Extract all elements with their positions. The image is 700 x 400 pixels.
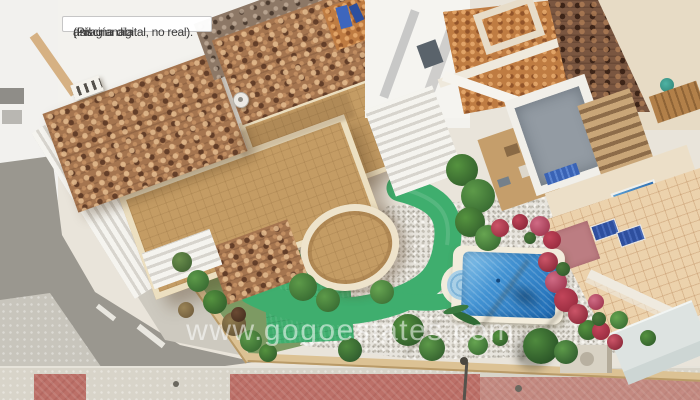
bougainvillea [538, 252, 558, 272]
hedge [455, 207, 485, 237]
building-shadow [234, 92, 356, 157]
roof-shadow [380, 9, 420, 99]
bougainvillea [543, 231, 561, 249]
pool-coping [451, 245, 566, 325]
pool-coping-steps [441, 264, 483, 306]
awning-panels [608, 300, 700, 385]
bougainvillea [554, 288, 578, 312]
photo-note: ¡Imagíanala así! (Piscina digital, no re… [62, 16, 212, 32]
photo-note-line: (Piscina digital, no real). [73, 24, 193, 41]
neighbor-terrace-cream [545, 145, 700, 236]
bougainvillea [491, 219, 509, 237]
courtyard-white-surround [504, 74, 617, 196]
bougainvillea [607, 334, 623, 350]
sun-lounger [590, 218, 620, 242]
bougainvillea-leaves [524, 232, 536, 244]
bougainvillea-leaves [556, 262, 570, 276]
porch-roof [207, 219, 307, 304]
curved-balcony [288, 190, 411, 304]
bougainvillea [592, 322, 610, 340]
roof-terrace-upper [239, 66, 431, 213]
streetlight-pole [463, 362, 469, 400]
bush [554, 340, 578, 364]
corrugated-roof [32, 104, 182, 299]
bush [187, 270, 209, 292]
white-wall-band [442, 71, 568, 123]
hedge [475, 225, 501, 251]
bougainvillea [568, 304, 588, 324]
pool-roman-steps [447, 270, 477, 300]
manhole [515, 385, 522, 392]
road-marking [96, 304, 116, 321]
bush [370, 280, 394, 304]
garden-wall-south [248, 353, 700, 382]
deck-furniture [497, 176, 511, 187]
villa-roof [42, 52, 247, 212]
bougainvillea-leaves [592, 312, 606, 326]
neighbor-courtyard-beige [590, 0, 700, 130]
roof-terrace-main [118, 114, 381, 299]
road-marking [137, 324, 166, 348]
patio-parapet [438, 31, 581, 88]
courtyard-shaded [515, 86, 606, 186]
red-paving-band [230, 374, 480, 400]
laundry-blue [335, 5, 352, 29]
roof-shadow [418, 29, 456, 110]
pool-ripples [461, 251, 557, 318]
bougainvillea [530, 216, 550, 236]
wood-deck [649, 81, 700, 124]
plunge-pool [610, 179, 659, 210]
bougainvillea [512, 214, 528, 230]
deck-furniture [518, 164, 531, 179]
skylight [416, 39, 443, 68]
pool-drain [496, 279, 500, 283]
red-paving-band [34, 374, 86, 400]
bush [578, 320, 598, 340]
bougainvillea [588, 294, 604, 310]
garden-structure [560, 345, 612, 373]
bush [610, 311, 628, 329]
deck-furniture [504, 143, 520, 157]
courtyard-chair [660, 78, 674, 92]
pergola-white [364, 85, 463, 196]
patio-stone-frame [473, 0, 545, 55]
bush [172, 252, 192, 272]
staircase [577, 88, 653, 177]
laundry-blue [349, 3, 365, 23]
white-wall-left-column [0, 0, 58, 200]
bush [289, 273, 317, 301]
balcony-tiled [322, 0, 380, 51]
garden-structure-top [580, 352, 594, 366]
rooftop-unit [0, 88, 24, 104]
watermark: www.gogoestates.com [168, 314, 533, 348]
sidewalk [0, 366, 700, 400]
satellite-dish-feed [238, 97, 243, 102]
neighbor-roof [212, 0, 407, 125]
manhole [173, 381, 179, 387]
rooftop-white [365, 0, 470, 118]
hedge [461, 179, 495, 213]
streetlight-head [460, 357, 468, 365]
pergola [142, 229, 223, 289]
aerial-photo: ¡Imagíanala así! (Piscina digital, no re… [0, 0, 700, 400]
hedge [446, 154, 478, 186]
sun-lounger [616, 224, 646, 248]
red-paving-band [480, 377, 700, 400]
neighbor-deck [477, 120, 560, 211]
pool-water [461, 251, 557, 318]
satellite-dish [233, 92, 249, 108]
bush [640, 330, 656, 346]
terrace-mat-pink [544, 221, 601, 274]
bush [316, 288, 340, 312]
neighbor-roof-shaded [194, 0, 337, 80]
fence-rail-white [587, 269, 700, 331]
palm-shadow-on-water [500, 275, 549, 319]
bush [203, 290, 227, 314]
bougainvillea [545, 271, 567, 293]
sun-lounger [544, 163, 580, 185]
chimney [70, 75, 104, 100]
building-corner-edge [30, 32, 79, 96]
rooftop-unit [2, 110, 22, 124]
